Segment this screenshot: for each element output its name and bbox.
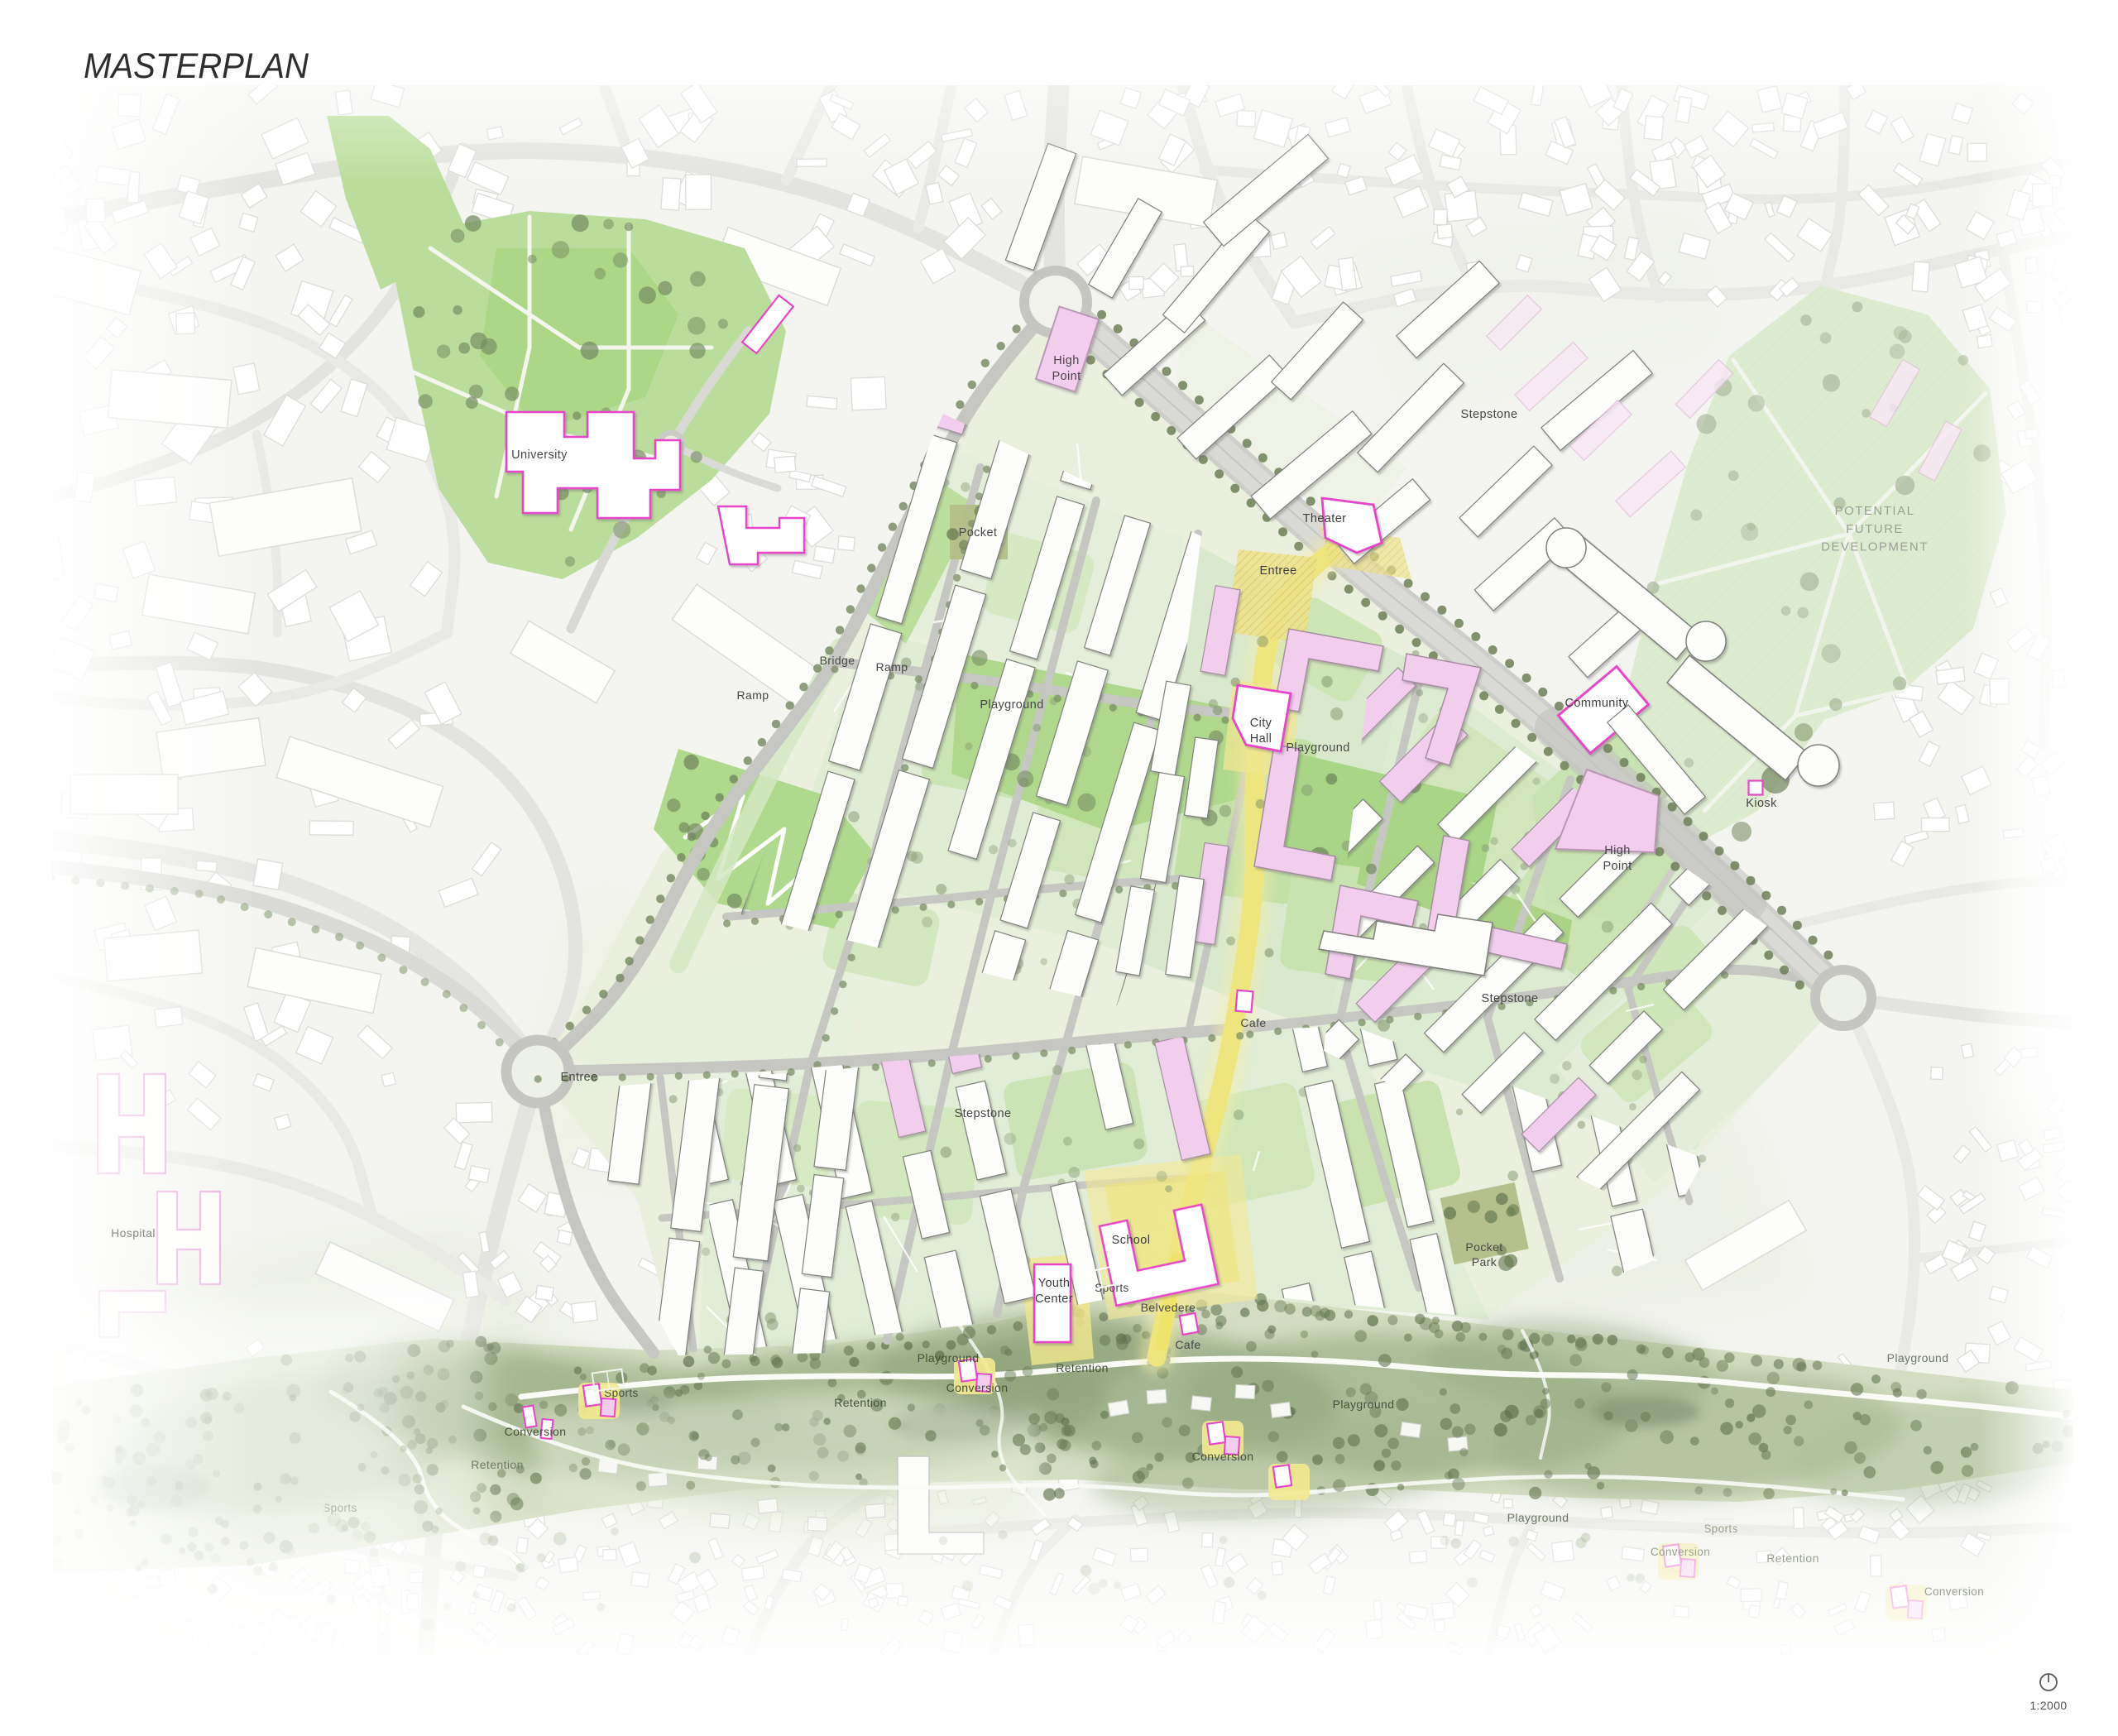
- svg-text:Playground: Playground: [1286, 741, 1349, 755]
- svg-text:Ramp: Ramp: [876, 660, 908, 674]
- svg-text:Playground: Playground: [1507, 1511, 1569, 1524]
- svg-text:Conversion: Conversion: [946, 1381, 1009, 1394]
- svg-text:Stepstone: Stepstone: [1461, 408, 1518, 421]
- svg-text:Retention: Retention: [471, 1458, 524, 1471]
- svg-text:Entree: Entree: [1259, 564, 1296, 578]
- svg-text:Hospital: Hospital: [111, 1226, 156, 1240]
- svg-text:1:2000: 1:2000: [2029, 1699, 2067, 1712]
- svg-text:Kiosk: Kiosk: [1746, 797, 1777, 810]
- svg-text:Playground: Playground: [1887, 1351, 1949, 1364]
- svg-text:MASTERPLAN: MASTERPLAN: [84, 46, 309, 86]
- svg-text:Entree: Entree: [560, 1071, 597, 1084]
- svg-text:Pocket: Pocket: [959, 526, 998, 540]
- svg-text:Retention: Retention: [834, 1396, 887, 1409]
- svg-text:Ramp: Ramp: [737, 688, 769, 702]
- svg-text:School: School: [1112, 1234, 1151, 1247]
- svg-text:Bridge: Bridge: [820, 654, 855, 667]
- svg-text:Playground: Playground: [1333, 1398, 1395, 1411]
- svg-text:Community: Community: [1565, 697, 1629, 710]
- svg-text:Conversion: Conversion: [505, 1425, 567, 1438]
- svg-text:University: University: [511, 448, 568, 462]
- svg-text:Cafe: Cafe: [1240, 1016, 1266, 1029]
- svg-text:Retention: Retention: [1056, 1361, 1109, 1374]
- svg-text:Conversion: Conversion: [1192, 1450, 1254, 1463]
- svg-text:Retention: Retention: [1766, 1551, 1819, 1565]
- svg-text:Theater: Theater: [1303, 512, 1347, 525]
- svg-text:Playground: Playground: [980, 698, 1043, 712]
- svg-text:Stepstone: Stepstone: [955, 1107, 1012, 1120]
- svg-text:Cafe: Cafe: [1175, 1338, 1200, 1351]
- svg-text:Belvedere: Belvedere: [1141, 1301, 1196, 1314]
- svg-text:Playground: Playground: [918, 1351, 980, 1364]
- svg-text:Conversion: Conversion: [1924, 1585, 1984, 1598]
- svg-text:Stepstone: Stepstone: [1482, 992, 1539, 1005]
- svg-text:Conversion: Conversion: [1651, 1546, 1710, 1558]
